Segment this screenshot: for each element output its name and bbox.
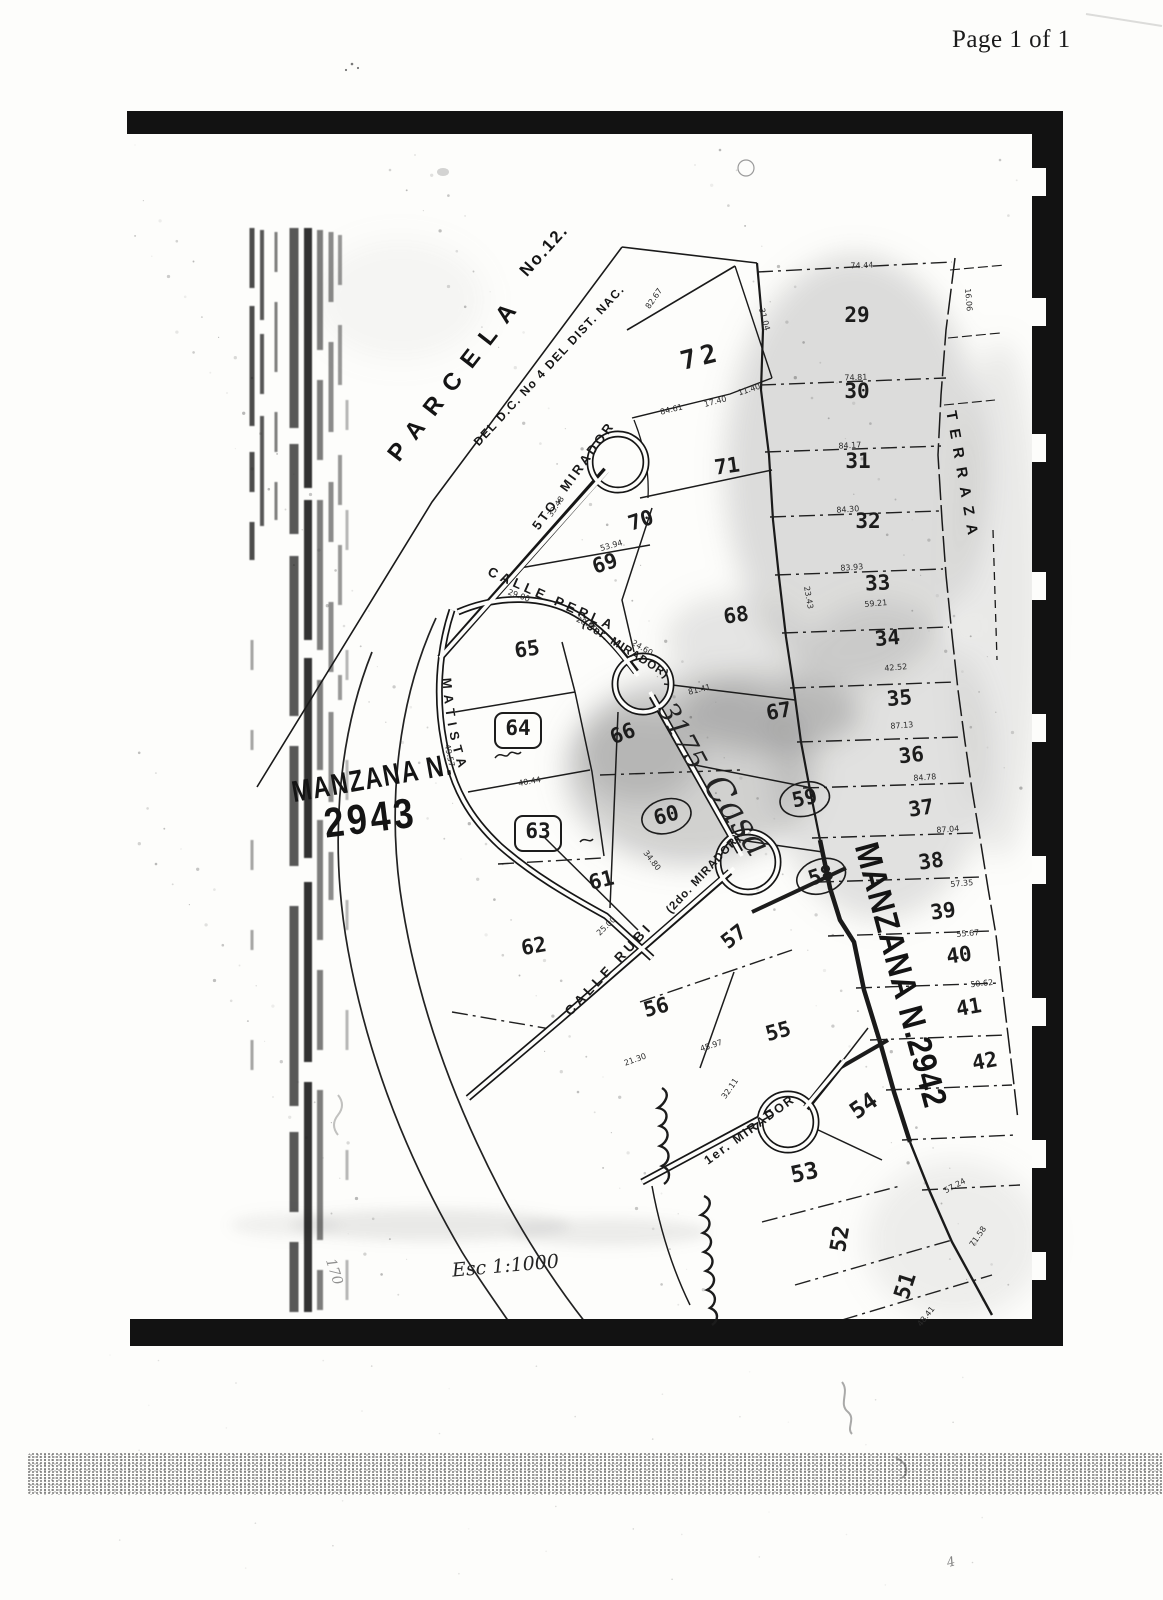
- grain-dot: [256, 985, 257, 986]
- grain-dot: [555, 1506, 557, 1508]
- grain-dot: [342, 1500, 344, 1502]
- lot-number: 38: [917, 847, 945, 874]
- grain-dot: [719, 149, 722, 152]
- grain-dot: [686, 1269, 687, 1270]
- grain-dot: [481, 326, 483, 328]
- grain-dot: [543, 959, 546, 962]
- grain-dot: [770, 301, 771, 302]
- grain-dot: [1007, 214, 1010, 217]
- grain-dot: [201, 316, 203, 318]
- grain-dot: [577, 1091, 580, 1094]
- grain-dot: [906, 1161, 909, 1164]
- grain-dot: [920, 575, 921, 576]
- grain-dot: [158, 219, 161, 222]
- grain-dot: [392, 685, 395, 688]
- grain-dot: [973, 1242, 976, 1245]
- lot-label-52: 52: [826, 1224, 855, 1254]
- lot-number: 30: [844, 379, 869, 403]
- grain-dot: [175, 330, 178, 333]
- grain-dot: [527, 940, 528, 941]
- grain-dot: [180, 848, 181, 849]
- dimension-label: 16.06: [963, 288, 974, 312]
- grain-dot: [184, 296, 187, 299]
- grain-dot: [912, 519, 913, 520]
- grain-dot: [736, 260, 739, 263]
- grain-dot: [635, 1207, 638, 1210]
- grain-dot: [811, 397, 814, 400]
- grain-dot: [146, 807, 149, 810]
- grain-dot: [464, 215, 466, 217]
- grain-dot: [573, 484, 574, 485]
- grain-dot: [226, 392, 227, 393]
- grain-dot: [891, 1142, 892, 1143]
- scale-note: Esc 1:1000: [450, 1250, 560, 1281]
- lot-label-42: 42: [970, 1047, 999, 1075]
- grain-dot: [305, 1136, 308, 1139]
- grain-dot: [715, 702, 716, 703]
- grain-dot: [961, 670, 964, 673]
- grain-dot: [406, 1259, 407, 1260]
- grain-dot: [944, 650, 947, 653]
- grain-dot: [611, 1132, 612, 1133]
- grain-dot: [485, 843, 488, 846]
- grain-dot: [406, 189, 408, 191]
- grain-dot: [138, 842, 141, 845]
- grain-dot: [502, 863, 504, 865]
- grain-dot: [978, 691, 980, 693]
- grain-dot: [814, 913, 817, 916]
- grain-dot: [418, 762, 421, 765]
- grain-dot: [348, 1233, 349, 1234]
- grain-dot: [982, 1298, 985, 1301]
- grain-dot: [536, 1365, 538, 1367]
- grain-dot: [493, 898, 496, 901]
- lot-label-72: 72: [677, 338, 724, 377]
- grain-dot: [213, 888, 216, 891]
- lot-number: 52: [826, 1224, 855, 1254]
- grain-dot: [882, 1086, 883, 1087]
- grain-dot: [623, 544, 625, 546]
- lot-label-35: 35: [886, 685, 913, 711]
- grain-dot: [865, 1444, 867, 1446]
- grain-dot: [765, 853, 768, 856]
- dimension-label: 21.30: [623, 1052, 648, 1068]
- grain-dot: [652, 1228, 655, 1231]
- grain-dot: [652, 1438, 654, 1440]
- grain-dot: [736, 169, 738, 171]
- grain-dot: [505, 310, 508, 313]
- grain-dot: [193, 261, 195, 263]
- grain-dot: [987, 656, 988, 657]
- grain-dot: [380, 1273, 383, 1276]
- grain-dot: [468, 822, 471, 825]
- grain-dot: [502, 954, 505, 957]
- grain-dot: [148, 1405, 150, 1407]
- frame-notch: [1032, 572, 1046, 600]
- grain-dot: [565, 428, 566, 429]
- grain-dot: [377, 666, 378, 667]
- grain-dot: [218, 337, 219, 338]
- dimension-label: 87.13: [890, 720, 913, 731]
- grain-dot: [836, 382, 837, 383]
- grain-dot: [259, 432, 262, 435]
- grain-dot: [972, 1562, 974, 1564]
- grain-dot: [869, 422, 872, 425]
- lot-label-65: 65: [513, 635, 541, 662]
- grain-dot: [773, 908, 776, 911]
- lot-label-38: 38: [917, 847, 945, 874]
- grain-dot: [702, 1288, 705, 1291]
- grain-dot: [464, 306, 467, 309]
- grain-dot: [958, 1223, 959, 1224]
- grain-dot: [941, 1203, 943, 1205]
- grain-dot: [966, 1279, 967, 1280]
- grain-dot: [857, 1010, 859, 1012]
- grain-dot: [759, 1556, 761, 1558]
- grain-dot: [768, 1511, 770, 1513]
- dimension-label: 57.35: [950, 878, 974, 889]
- grain-dot: [644, 1172, 647, 1175]
- lot-label-63: 63: [515, 816, 561, 851]
- grain-dot: [484, 933, 487, 936]
- lot-number: 65: [513, 635, 541, 662]
- grain-dot: [458, 1573, 460, 1575]
- grain-dot: [332, 1545, 334, 1547]
- grain-dot: [438, 229, 441, 232]
- grain-dot: [660, 1283, 663, 1286]
- grain-dot: [551, 1014, 554, 1017]
- grain-dot: [414, 154, 415, 155]
- grain-dot: [235, 448, 236, 449]
- grain-dot: [874, 1031, 875, 1032]
- lot-number: 55: [763, 1016, 794, 1046]
- frame-notch: [1032, 1140, 1046, 1168]
- grain-dot: [326, 604, 329, 607]
- dimension-label: 87.04: [936, 824, 959, 835]
- grain-dot: [823, 969, 826, 972]
- grain-dot: [657, 676, 658, 677]
- grain-dot: [953, 615, 956, 618]
- grain-dot: [678, 1213, 679, 1214]
- grain-dot: [1011, 731, 1014, 734]
- grain-dot: [447, 285, 450, 288]
- grain-dot: [204, 923, 207, 926]
- lot-number: 67: [764, 697, 793, 725]
- lot-label-33: 33: [864, 570, 891, 595]
- grain-dot: [903, 554, 905, 556]
- grain-dot: [209, 372, 211, 374]
- grain-dot: [519, 975, 521, 977]
- grain-dot: [426, 817, 429, 820]
- grain-dot: [310, 585, 311, 586]
- grain-dot: [853, 494, 854, 495]
- grain-dot: [239, 965, 241, 967]
- grain-dot: [280, 1060, 283, 1063]
- dimension-label: 45.97: [699, 1038, 724, 1054]
- dimension-label: 40.44: [518, 775, 542, 788]
- grain-dot: [640, 565, 641, 566]
- grain-dot: [927, 538, 930, 541]
- grain-dot: [361, 1410, 363, 1412]
- grain-dot: [846, 1534, 848, 1536]
- grain-dot: [875, 1399, 877, 1401]
- grain-dot: [819, 362, 821, 364]
- dimension-label: 83.93: [840, 562, 863, 573]
- grain-dot: [990, 1263, 993, 1266]
- lot-number: 29: [844, 303, 869, 327]
- dimension-label: 17.40: [703, 394, 727, 409]
- parcela-number: No.12.: [516, 221, 572, 281]
- grain-dot: [981, 1517, 983, 1519]
- grain-dot: [681, 1534, 683, 1536]
- grain-dot: [840, 990, 843, 993]
- grain-dot: [1007, 1284, 1009, 1286]
- grain-dot: [802, 341, 805, 344]
- grain-dot: [490, 291, 491, 292]
- lot-label-57: 57: [716, 919, 751, 953]
- dimension-label: 55.67: [956, 928, 980, 939]
- lot-label-39: 39: [929, 897, 957, 924]
- grain-dot: [848, 1045, 851, 1048]
- grain-dot: [928, 630, 929, 631]
- grain-dot: [293, 564, 295, 566]
- lot-number: 39: [929, 897, 957, 924]
- grain-dot: [371, 1365, 373, 1367]
- grain-dot: [739, 1416, 741, 1418]
- grain-dot: [970, 635, 972, 637]
- manzana-2943-line2: 2943: [321, 790, 419, 847]
- grain-dot: [895, 499, 897, 501]
- dimension-label: 84.30: [836, 504, 859, 515]
- grain-dot: [852, 402, 855, 405]
- lot-label-71: 71: [713, 452, 741, 479]
- grain-dot: [389, 169, 392, 172]
- grain-dot: [397, 1294, 399, 1296]
- grain-dot: [860, 457, 863, 460]
- grain-dot: [251, 377, 254, 380]
- lot-label-64: 64: [495, 713, 541, 748]
- grain-dot: [245, 1567, 247, 1569]
- dimension-label: 82.67: [644, 287, 665, 311]
- grain-dot: [460, 858, 461, 859]
- lot-number: 64: [505, 716, 530, 740]
- ghost-bleedthrough: [230, 1209, 710, 1246]
- grain-dot: [155, 863, 158, 866]
- lot-label-54: 54: [845, 1088, 883, 1125]
- grain-dot: [690, 716, 693, 719]
- grain-dot: [226, 1427, 228, 1429]
- grain-dot: [732, 813, 733, 814]
- grain-dot: [189, 904, 190, 905]
- grain-dot: [331, 1122, 332, 1123]
- grain-dot: [807, 950, 808, 951]
- grain-dot: [346, 1141, 349, 1144]
- grain-dot: [662, 1393, 664, 1395]
- grain-dot: [510, 919, 512, 921]
- grain-dot: [522, 331, 525, 334]
- lot-label-67: 67: [764, 697, 793, 725]
- grain-dot: [355, 1197, 358, 1200]
- grain-dot: [544, 1051, 545, 1052]
- grain-dot: [389, 1238, 391, 1240]
- grain-dot: [753, 281, 755, 283]
- grain-dot: [213, 979, 216, 982]
- lot-label-53: 53: [788, 1158, 821, 1189]
- grain-dot: [297, 1081, 300, 1084]
- grain-dot: [192, 351, 195, 354]
- lot-label-40: 40: [945, 941, 973, 968]
- grain-dot: [911, 610, 913, 612]
- grain-dot: [468, 1528, 470, 1530]
- grain-dot: [828, 417, 830, 419]
- frame-notch: [1032, 298, 1046, 326]
- grain-dot: [134, 144, 135, 145]
- grain-dot: [172, 883, 174, 885]
- street-label-primer-mirador: 1er. MIRADOR: [702, 1092, 798, 1167]
- lot-number: 41: [954, 993, 983, 1021]
- grain-dot: [158, 1360, 160, 1362]
- dimension-label: 32.11: [720, 1077, 741, 1101]
- grain-dot: [522, 422, 525, 425]
- grain-dot: [322, 1360, 324, 1362]
- grain-dot: [155, 772, 157, 774]
- grain-dot: [119, 1539, 121, 1541]
- grain-dot: [648, 620, 649, 621]
- grain-dot: [134, 235, 136, 237]
- grain-dot: [230, 1000, 233, 1003]
- grain-dot: [272, 1096, 273, 1097]
- grain-dot: [761, 246, 762, 247]
- grain-dot: [439, 1433, 441, 1435]
- grain-dot: [744, 225, 746, 227]
- grain-dot: [1004, 767, 1005, 768]
- grain-dot: [715, 792, 717, 794]
- grain-dot: [264, 1041, 265, 1042]
- grain-dot: [539, 442, 542, 445]
- street-label-tercer-mirador: (3er. MIRADOR): [580, 618, 671, 681]
- dimension-label: 84.17: [838, 440, 861, 450]
- grain-dot: [886, 534, 889, 537]
- grain-dot: [242, 412, 245, 415]
- grain-dot: [618, 1096, 621, 1099]
- grain-dot: [1016, 179, 1018, 181]
- grain-dot: [138, 752, 141, 755]
- grain-dot: [748, 832, 751, 835]
- grain-dot: [749, 1371, 751, 1373]
- lot-number: 35: [886, 685, 913, 711]
- grain-dot: [368, 610, 369, 611]
- grain-dot: [473, 271, 475, 273]
- dimension-label: 74.81: [844, 373, 867, 383]
- grain-dot: [556, 463, 558, 465]
- lot-label-68: 68: [722, 601, 750, 628]
- lot-number: 69: [589, 548, 620, 579]
- grain-dot: [694, 164, 695, 165]
- grain-dot: [606, 524, 609, 527]
- grain-dot: [602, 1076, 603, 1077]
- grain-dot: [962, 1377, 964, 1379]
- cursive-note-2: [701, 1196, 717, 1325]
- lot-number: 31: [845, 449, 870, 473]
- dimension-label: 84.78: [913, 772, 936, 783]
- grain-dot: [109, 1354, 111, 1356]
- lot-label-34: 34: [874, 625, 901, 651]
- frame-notch: [1032, 168, 1046, 196]
- grain-dot: [322, 1157, 324, 1159]
- frame-notch: [1032, 714, 1046, 742]
- grain-dot: [548, 407, 550, 409]
- lot-number: 57: [716, 919, 751, 953]
- grain-dot: [545, 1551, 547, 1553]
- grain-dot: [368, 701, 370, 703]
- frame-notch: [1032, 1252, 1046, 1280]
- grain-dot: [727, 204, 730, 207]
- frame-notch: [1032, 998, 1046, 1026]
- grain-dot: [363, 1252, 366, 1255]
- grain-dot: [447, 194, 450, 197]
- grain-dot: [331, 1213, 333, 1215]
- grain-dot: [443, 838, 445, 840]
- lot-number: 40: [945, 941, 973, 968]
- lot-label-37: 37: [907, 794, 935, 821]
- ghost-4: 4: [944, 1554, 957, 1571]
- lot-label-62: 62: [519, 932, 548, 960]
- grain-dot: [247, 1020, 249, 1022]
- grain-dot: [794, 376, 797, 379]
- grain-dot: [865, 1066, 867, 1068]
- lot-number: 33: [864, 570, 891, 595]
- grain-dot: [756, 797, 759, 800]
- lot-label-56: 56: [641, 992, 672, 1022]
- grain-dot: [222, 944, 225, 947]
- grain-dot: [167, 275, 170, 278]
- grain-dot: [317, 548, 320, 551]
- grain-dot: [427, 727, 429, 729]
- grain-dot: [138, 1450, 140, 1452]
- grain-dot: [143, 200, 144, 201]
- lot-number: 72: [677, 338, 724, 377]
- grain-dot: [672, 695, 675, 698]
- grain-dot: [255, 1522, 257, 1524]
- frame-top-bar: [127, 111, 1063, 134]
- grain-dot: [677, 1304, 679, 1306]
- grain-dot: [999, 159, 1002, 162]
- grain-dot: [582, 539, 583, 540]
- lot-label-36: 36: [897, 742, 925, 769]
- grain-dot: [640, 655, 642, 657]
- grain-dot: [832, 934, 835, 937]
- grain-dot: [339, 1178, 340, 1179]
- grain-dot: [671, 1579, 673, 1581]
- grain-dot: [410, 706, 413, 709]
- scanned-page: Page 1 of 1: [0, 0, 1163, 1600]
- grain-dot: [898, 1106, 901, 1109]
- grain-dot: [924, 1182, 927, 1185]
- grain-dot: [949, 1258, 951, 1260]
- grain-dot: [785, 320, 788, 323]
- grain-dot: [514, 366, 517, 369]
- grain-dot: [372, 1218, 375, 1221]
- lot-number: 34: [874, 625, 901, 651]
- grain-dot: [790, 929, 792, 931]
- grain-dot: [594, 1111, 596, 1113]
- ghost-170: 170: [322, 1257, 346, 1287]
- grain-dot: [987, 747, 989, 749]
- grain-dot: [614, 579, 617, 582]
- grain-dot: [995, 712, 996, 713]
- grain-dot: [949, 1168, 950, 1169]
- grain-dot: [343, 625, 346, 628]
